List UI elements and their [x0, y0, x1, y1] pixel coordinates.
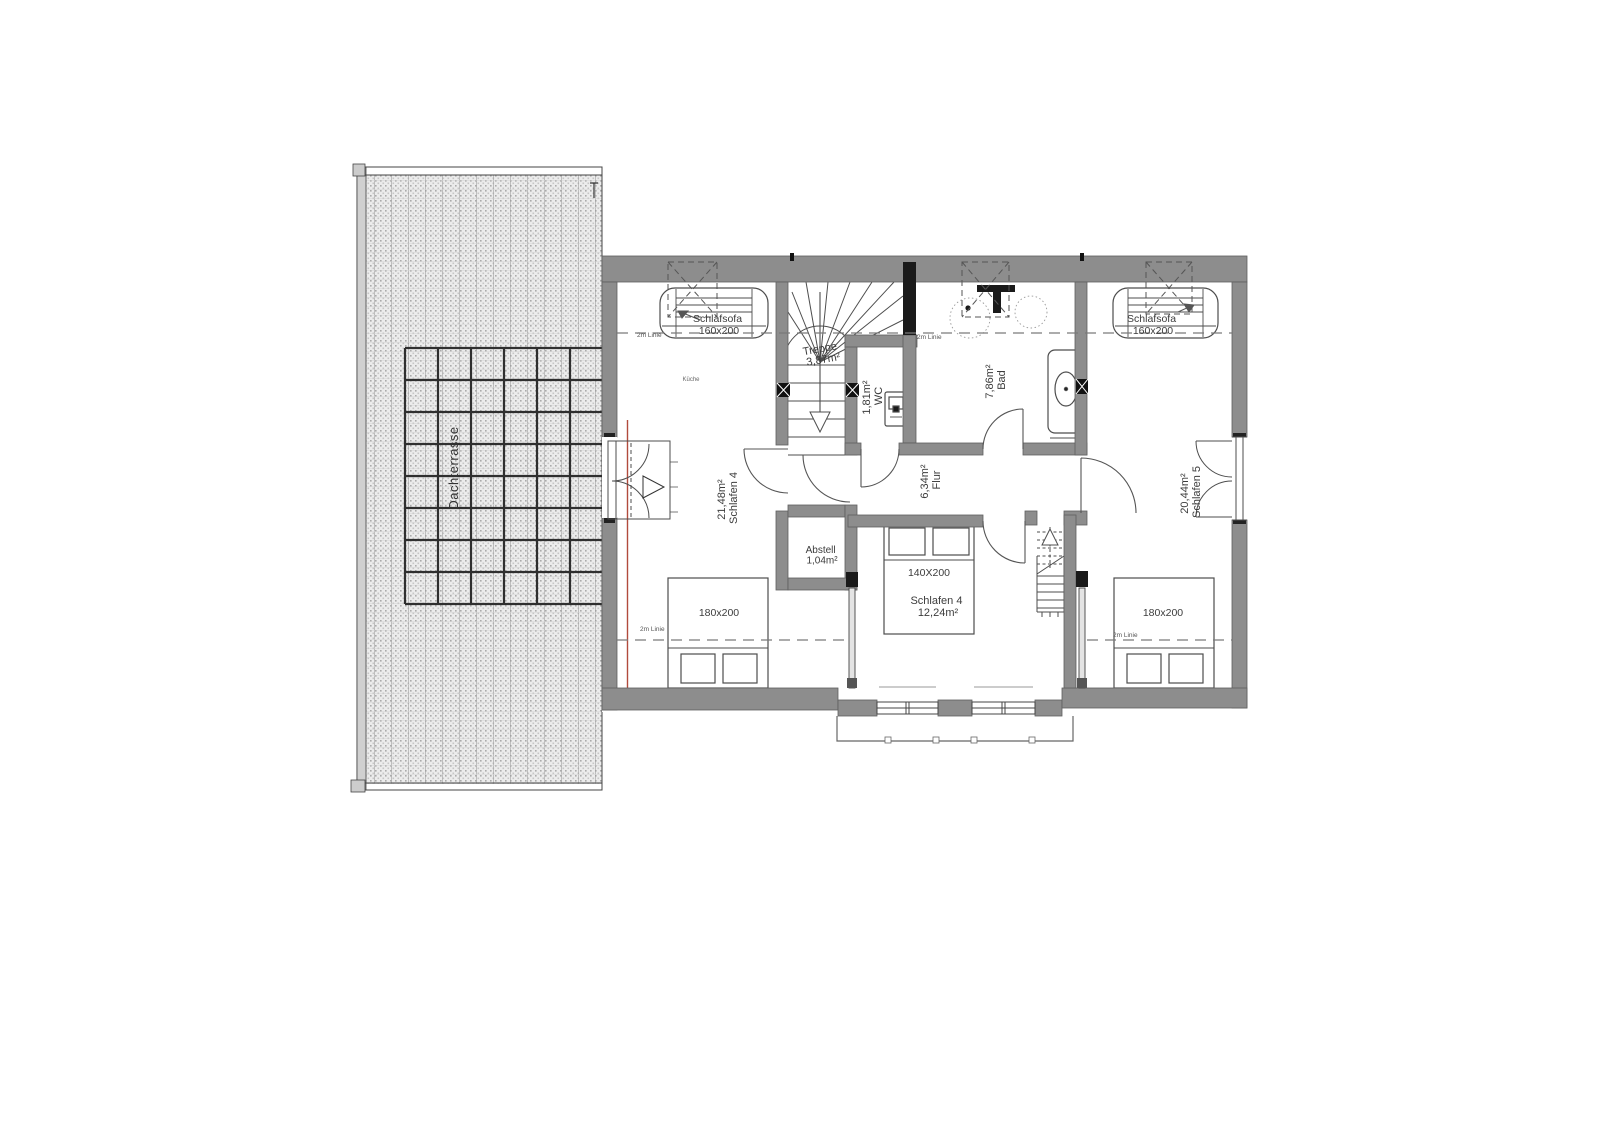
height-line-label: 2m Linie [1113, 632, 1138, 639]
wall-wc-east [903, 335, 916, 443]
balcony-railing [837, 716, 1073, 743]
bed-center-label: 140X200 [908, 567, 950, 579]
wall-storage-north [788, 505, 845, 517]
room-name: Flur [931, 470, 943, 489]
room-area: 7,86m² [984, 364, 996, 399]
height-line-label: 2m Linie [917, 334, 942, 341]
post [846, 383, 859, 397]
wall-bottom-center [1035, 700, 1062, 716]
room-label-bedroom-right: 20,44m² Schlafen 5 [1179, 466, 1203, 518]
roof-terrace: Dachterrasse [351, 164, 603, 792]
wall-left-lower [602, 518, 617, 710]
room-name: WC [873, 387, 885, 405]
floor-plan-drawing: Dachterrasse [0, 0, 1600, 1131]
pillow [889, 528, 925, 555]
room-area: 6,34m² [919, 464, 931, 499]
room-label-storage: Abstell 1,04m² [806, 545, 839, 567]
floor-plan-page: Dachterrasse [0, 0, 1600, 1131]
bed-left [668, 578, 768, 688]
room-name: Schlafen 4 [728, 472, 740, 524]
room-name: Abstell [806, 545, 836, 556]
room-name: Schlafen 5 [1191, 466, 1203, 518]
pillow [933, 528, 969, 555]
bed-right-label: 180x200 [1143, 607, 1183, 619]
wall-niche-jamb [1025, 511, 1037, 525]
wall-top [602, 256, 1247, 282]
room-area: 20,44m² [1179, 473, 1191, 514]
axis-tick [790, 253, 794, 261]
sofa-size: 160x200 [699, 325, 739, 337]
railing-post [353, 164, 365, 176]
sofa-left-label: Schlafsofa 160x200 [693, 313, 745, 337]
pillow [1169, 654, 1203, 683]
room-area: 21,48m² [716, 479, 728, 520]
ghost-room-label: Küche [682, 377, 700, 383]
bed-left-label: 180x200 [699, 607, 739, 619]
wall-bedroom5-west [1064, 515, 1076, 688]
terrace-railing-left [357, 167, 366, 790]
room-label-bedroom-left: 21,48m² Schlafen 4 [716, 472, 740, 524]
wall-hall-north [845, 443, 861, 455]
room-area: 12,24m² [918, 607, 959, 619]
room-area: 1,04m² [806, 556, 838, 567]
room-area: 1,81m² [861, 380, 873, 415]
sofa-name: Schlafsofa [693, 313, 742, 325]
wall-storage-west [776, 511, 788, 590]
height-line-label: 2m Linie [637, 332, 662, 339]
post [1076, 379, 1088, 394]
wall-center-room-north [848, 515, 983, 527]
sofa-name: Schlafsofa [1127, 313, 1176, 325]
wall-bottom-right [1062, 688, 1247, 708]
stair-cut-wall [903, 262, 916, 335]
wall-bottom-left [602, 688, 838, 710]
post [777, 383, 790, 397]
pillow [723, 654, 757, 683]
wall-right-upper [1232, 282, 1247, 437]
room-name: Schlafen 4 [910, 595, 962, 607]
terrace-label: Dachterrasse [446, 426, 461, 509]
sofa-right-label: Schlafsofa 160x200 [1127, 313, 1179, 337]
pillow [681, 654, 715, 683]
wall-left-upper [602, 282, 617, 437]
pillow [1127, 654, 1161, 683]
wall-bottom-center [838, 700, 877, 716]
wall-right-lower [1232, 520, 1247, 708]
wall-stair-west [776, 282, 788, 445]
room-label-bedroom-center: Schlafen 4 12,24m² [910, 595, 965, 619]
wall-bottom-center [938, 700, 972, 716]
railing-post [351, 780, 365, 792]
room-name: Bad [996, 370, 1008, 390]
sofa-size: 160x200 [1133, 325, 1173, 337]
axis-tick [1080, 253, 1084, 261]
wall-bath-east [1075, 282, 1087, 455]
height-line-label: 2m Linie [640, 626, 665, 633]
wall-hall-north [899, 443, 983, 455]
